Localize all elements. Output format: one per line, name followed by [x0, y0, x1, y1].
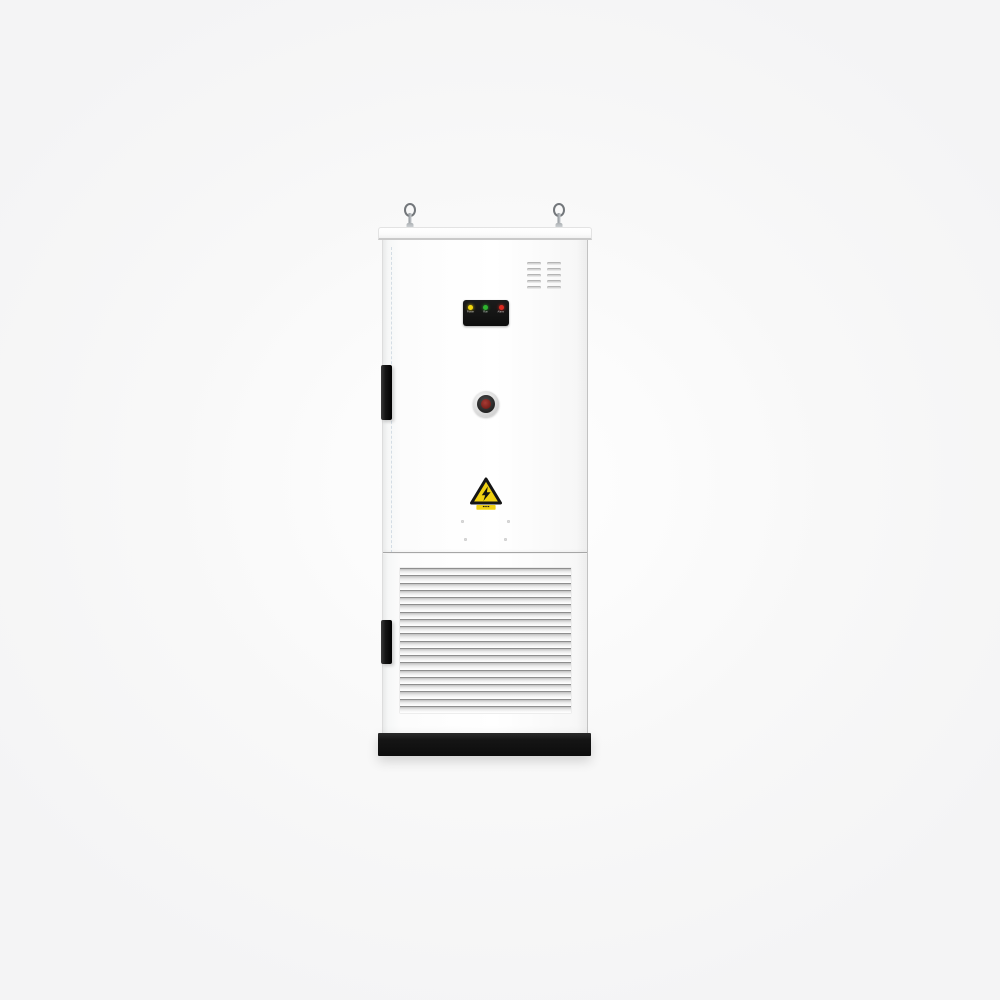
led-label: Alarm: [498, 311, 505, 314]
grille-slat: [400, 677, 571, 684]
lower-door-handle: [381, 620, 392, 664]
grille-slat: [400, 648, 571, 655]
grille-slat: [400, 568, 571, 575]
base-plinth: [378, 733, 591, 756]
grille-slat: [400, 641, 571, 648]
led-label: Power: [467, 311, 474, 314]
status-led-panel: PowerRunAlarm: [463, 300, 509, 326]
grille-slat: [400, 612, 571, 619]
button-core: [481, 399, 491, 409]
grille-slat: [400, 626, 571, 633]
vent-slot: [527, 268, 541, 271]
grille-slat: [400, 604, 571, 611]
vent-slot: [547, 280, 561, 283]
louver-grille: [400, 568, 571, 713]
warning-caption: ▪▪▪▪: [476, 505, 495, 510]
power-led-icon: [468, 305, 473, 310]
product-photo: PowerRunAlarm ▪▪▪▪: [0, 0, 1000, 1000]
grille-slat: [400, 597, 571, 604]
lifting-eye-icon: [404, 203, 416, 227]
vent-slot: [527, 274, 541, 277]
vent-slot: [527, 280, 541, 283]
lifting-eye-icon: [553, 203, 565, 227]
grille-slat: [400, 633, 571, 640]
vent-slot: [527, 286, 541, 289]
vent-slot: [547, 286, 561, 289]
led-label: Run: [484, 311, 489, 314]
vent-slot: [547, 262, 561, 265]
grille-slat: [400, 655, 571, 662]
vent-slot: [527, 262, 541, 265]
led-alarm: Alarm: [494, 305, 508, 316]
emergency-stop-button: [473, 391, 499, 417]
grille-slat: [400, 706, 571, 713]
mid-panel-seam: [383, 552, 587, 553]
grille-slat: [400, 670, 571, 677]
vent-slots: [527, 262, 561, 289]
door-screw: [507, 520, 510, 523]
power-cabinet: PowerRunAlarm ▪▪▪▪: [378, 227, 592, 756]
led-power: Power: [464, 305, 478, 316]
grille-slat: [400, 699, 571, 706]
top-cap: [378, 227, 592, 240]
run-led-icon: [483, 305, 488, 310]
cabinet-body: PowerRunAlarm ▪▪▪▪: [382, 240, 588, 733]
upper-door-handle: [381, 365, 392, 420]
led-run: Run: [479, 305, 493, 316]
door-screw: [464, 538, 467, 541]
alarm-led-icon: [499, 305, 504, 310]
grille-slat: [400, 590, 571, 597]
grille-slat: [400, 684, 571, 691]
door-screw: [461, 520, 464, 523]
vent-slot: [547, 274, 561, 277]
high-voltage-warning-sticker: ▪▪▪▪: [470, 477, 502, 513]
vent-slot: [547, 268, 561, 271]
grille-slat: [400, 691, 571, 698]
grille-slat: [400, 662, 571, 669]
grille-slat: [400, 583, 571, 590]
grille-slat: [400, 619, 571, 626]
grille-slat: [400, 575, 571, 582]
door-screw: [504, 538, 507, 541]
warning-triangle-icon: [470, 477, 502, 505]
